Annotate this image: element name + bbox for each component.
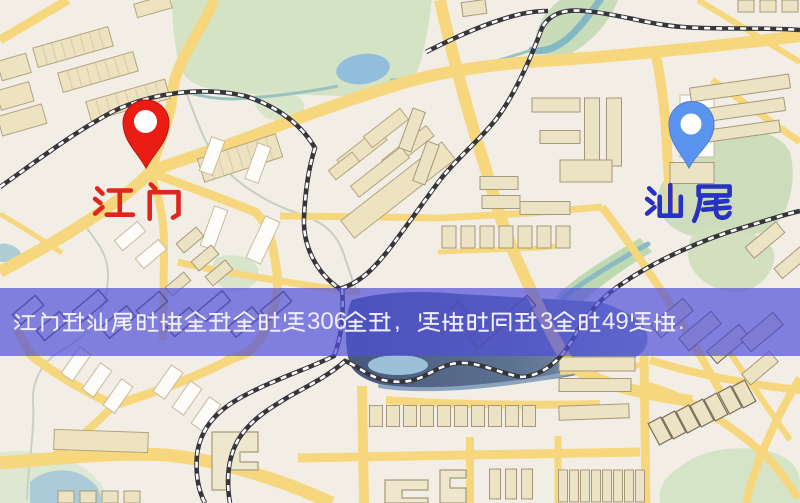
svg-text:306: 306	[307, 308, 347, 335]
svg-text:49: 49	[602, 308, 629, 335]
svg-text:3: 3	[540, 308, 553, 335]
svg-text:.: .	[678, 308, 685, 335]
svg-text:,: ,	[394, 308, 401, 335]
